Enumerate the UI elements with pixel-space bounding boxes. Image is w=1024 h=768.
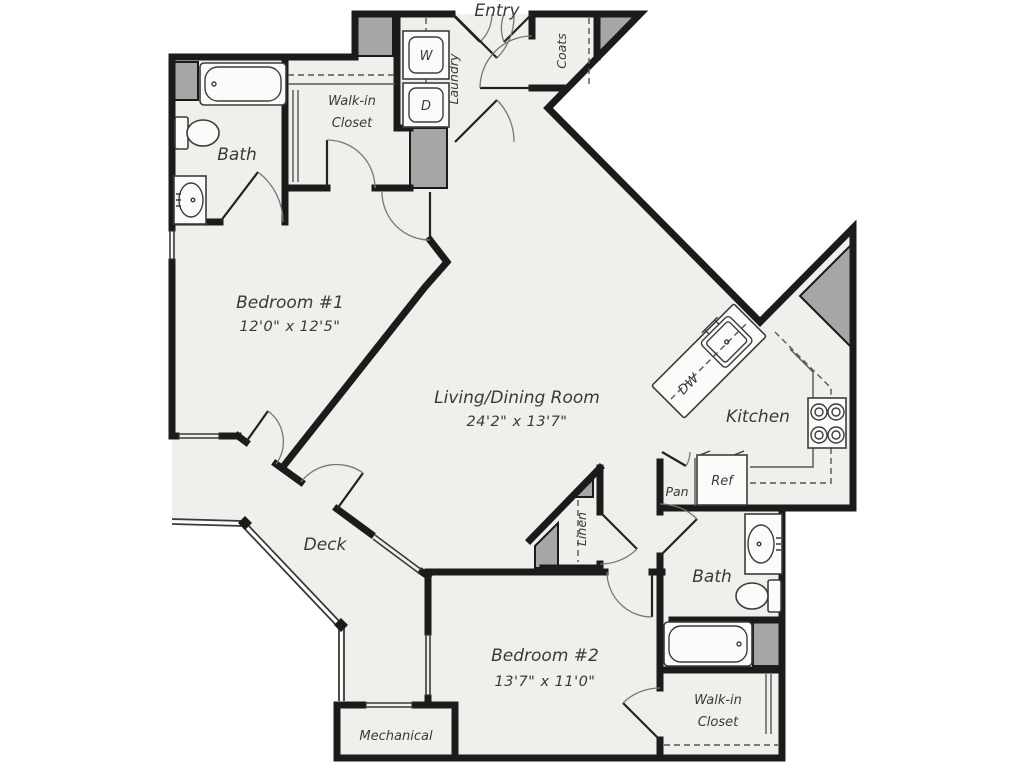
deck-label: Deck [304, 535, 348, 555]
living-dining-label: Living/Dining Room [434, 388, 600, 408]
linen-label: Linen [574, 512, 589, 546]
bathtub-icon [664, 622, 752, 666]
stove-icon [808, 398, 846, 448]
refrigerator-label: Ref [711, 474, 735, 489]
wall-block [753, 622, 781, 666]
toilet-icon [175, 117, 219, 149]
pantry-label: Pan [665, 484, 688, 499]
walk-in-closet2-label-line2: Closet [698, 715, 739, 730]
sink-icon [745, 514, 782, 574]
walk-in-closet1-label-line2: Closet [332, 116, 373, 131]
coats-label: Coats [554, 33, 569, 69]
walk-in-closet2-label-line1: Walk-in [694, 693, 742, 708]
bedroom1-label: Bedroom #1 [236, 293, 344, 313]
floor-plan-svg: DW E [0, 0, 1024, 768]
bathtub-icon [200, 63, 286, 105]
bedroom2-label: Bedroom #2 [491, 646, 599, 666]
bedroom2-dimensions: 13'7" x 11'0" [495, 674, 596, 690]
entry-label: Entry [474, 1, 520, 21]
bath1-label: Bath [217, 145, 257, 165]
toilet-icon [736, 580, 781, 612]
living-dining-dimensions: 24'2" x 13'7" [467, 414, 568, 430]
wall-block [172, 62, 198, 100]
floor-plan: DW E [0, 0, 1024, 768]
laundry-label: Laundry [446, 53, 461, 105]
dryer-label: D [421, 99, 431, 114]
walk-in-closet1-label-line1: Walk-in [328, 94, 376, 109]
bedroom1-dimensions: 12'0" x 12'5" [240, 319, 341, 335]
bath2-label: Bath [692, 567, 732, 587]
wall-block [357, 16, 393, 56]
kitchen-label: Kitchen [726, 407, 790, 427]
mechanical-label: Mechanical [359, 729, 433, 744]
sink-icon [174, 176, 206, 224]
washer-label: W [420, 49, 434, 64]
wall-block [410, 128, 447, 188]
